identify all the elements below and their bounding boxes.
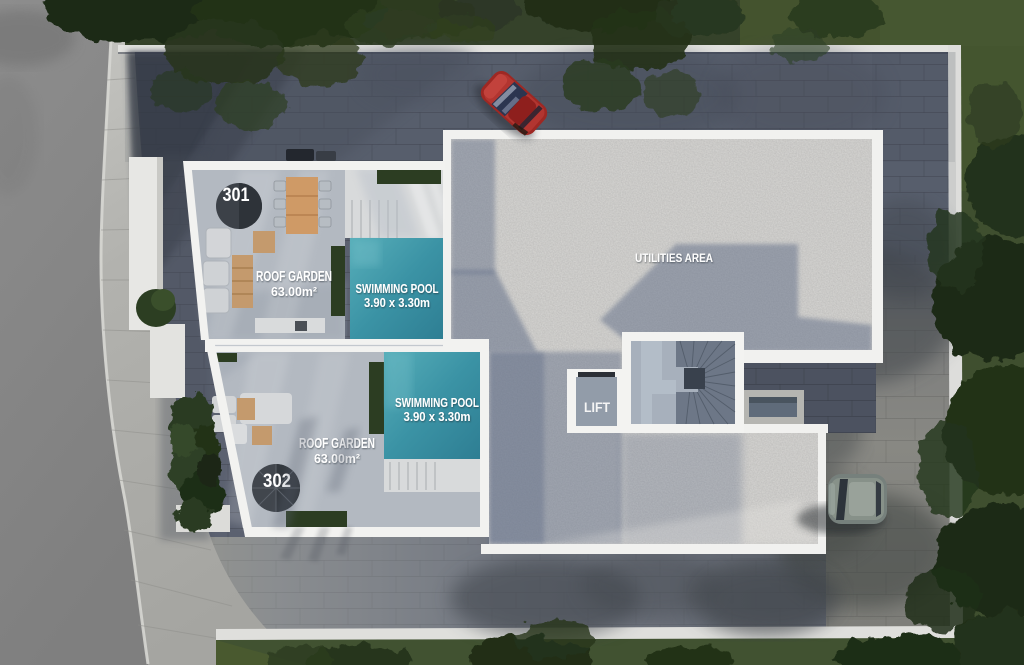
svg-text:UTILITIES AREA: UTILITIES AREA [635,253,713,265]
svg-text:ROOF GARDEN: ROOF GARDEN [256,268,332,285]
svg-text:SWIMMING POOL: SWIMMING POOL [395,395,479,410]
svg-text:301: 301 [223,185,250,206]
svg-text:LIFT: LIFT [584,400,611,415]
svg-text:3.90 x 3.30m: 3.90 x 3.30m [364,296,430,310]
svg-text:SWIMMING POOL: SWIMMING POOL [356,281,439,296]
svg-text:63.00m²: 63.00m² [271,284,318,299]
svg-text:3.90 x 3.30m: 3.90 x 3.30m [404,410,471,424]
